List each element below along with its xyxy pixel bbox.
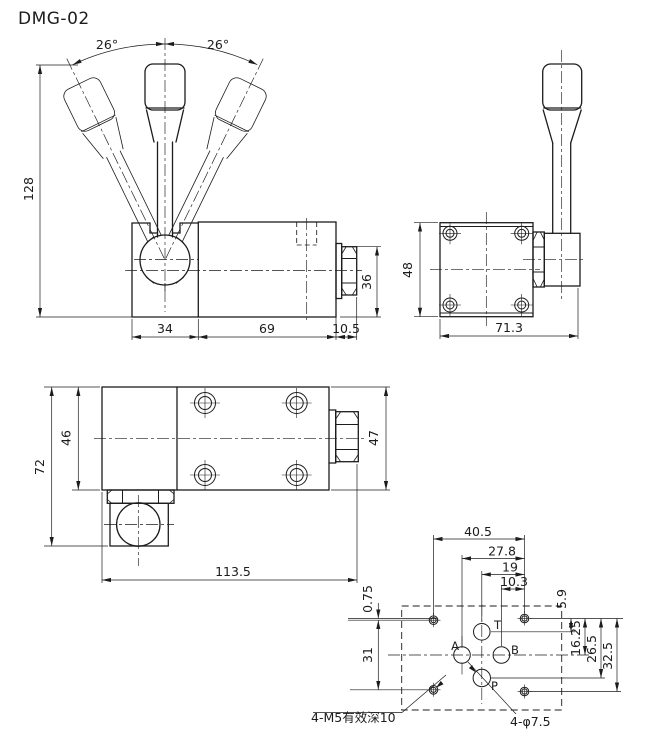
height-dimension-128: [36, 65, 132, 317]
pivot-nut-top: [107, 490, 174, 503]
note-dia: 4-φ7.5: [510, 714, 551, 729]
port-pattern-view: A T B P 40.5 27.8 19 10.3 0.75 31: [311, 524, 623, 729]
valve-body-front: [198, 222, 336, 317]
dim-10-5-label: 10.5: [332, 321, 360, 336]
dim-5-9-label: 5.9: [554, 589, 569, 609]
mounting-bolts-side: [439, 222, 533, 316]
dim-40-5-label: 40.5: [464, 524, 492, 539]
front-view: 26° 26° 128 34 69 10.5 36: [21, 37, 381, 340]
side-view: 48 71.3: [400, 50, 586, 339]
note-m5: 4-M5有效深10: [311, 710, 396, 725]
port-b-label: B: [511, 643, 519, 657]
dim-19-label: 19: [502, 560, 518, 575]
dim-48-label: 48: [400, 262, 415, 278]
port-left-dimensions: [348, 603, 437, 690]
end-cap-front: [336, 244, 357, 299]
m5-note-leader: [313, 675, 446, 713]
lever-phantom-right: [147, 50, 281, 269]
angle-right-label: 26°: [207, 37, 229, 52]
dim-36-label: 36: [359, 274, 374, 290]
end-cap-top: [329, 410, 358, 463]
dim-27-8-label: 27.8: [488, 544, 516, 559]
dim-31-label: 31: [360, 647, 375, 663]
port-a-label: A: [451, 639, 459, 653]
dim-16-25-label: 16.25: [568, 620, 583, 656]
drawing-page: DMG-02: [0, 0, 650, 745]
dim-69-label: 69: [259, 321, 275, 336]
dim-113-5-label: 113.5: [215, 564, 251, 579]
dim-34-label: 34: [157, 321, 173, 336]
dim-10-3-label: 10.3: [500, 574, 528, 589]
mounting-bolts-top: [190, 388, 312, 490]
port-t-label: T: [493, 618, 502, 632]
lever-side: [543, 64, 582, 233]
lever-phantom-left: [49, 50, 183, 269]
dim-26-5-label: 26.5: [584, 635, 599, 663]
dia-note-leader: [468, 662, 516, 714]
dim-32-5-label: 32.5: [600, 642, 615, 670]
drawing-title: DMG-02: [18, 9, 90, 29]
dim-46-label: 46: [59, 430, 74, 446]
top-view: 72 46 113.5 47: [32, 387, 390, 583]
technical-drawing: DMG-02: [0, 0, 650, 745]
dim-72-label: 72: [32, 459, 47, 475]
angle-left-label: 26°: [96, 37, 118, 52]
dim-71-3-label: 71.3: [495, 320, 523, 335]
height-128-label: 128: [21, 177, 36, 201]
dim-0-75-label: 0.75: [360, 585, 375, 613]
dim-47: [331, 387, 390, 490]
dim-72: [44, 387, 108, 546]
dim-47-label: 47: [366, 430, 381, 446]
